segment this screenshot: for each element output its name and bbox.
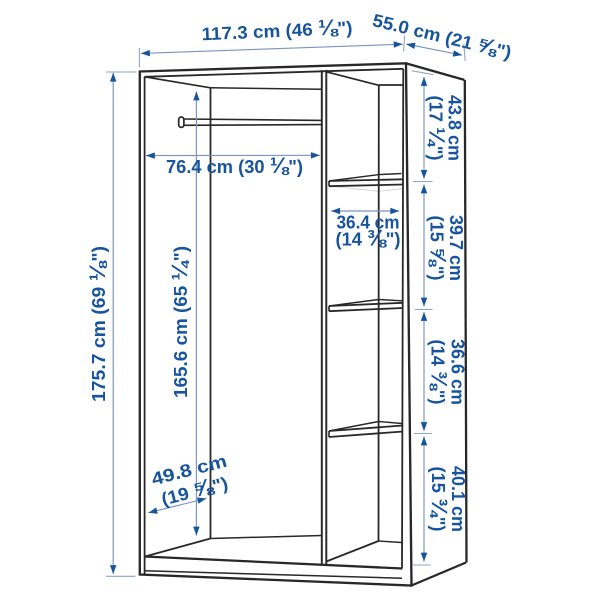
svg-text:55.0 cm (21 ⅝"): 55.0 cm (21 ⅝") [370, 6, 514, 63]
svg-text:165.6 cm (65 ¼"): 165.6 cm (65 ¼") [167, 246, 192, 398]
svg-text:(14 ⅜"): (14 ⅜") [336, 226, 401, 251]
svg-text:(15 ¾"): (15 ¾") [427, 467, 452, 532]
svg-text:76.4 cm (30 ⅛"): 76.4 cm (30 ⅛") [166, 153, 303, 178]
svg-text:175.7 cm (69 ⅛"): 175.7 cm (69 ⅛") [85, 246, 110, 402]
svg-text:(15 ⅝"): (15 ⅝") [426, 216, 451, 281]
svg-text:(14 ⅜"): (14 ⅜") [427, 340, 452, 405]
svg-text:117.3 cm (46 ⅛"): 117.3 cm (46 ⅛") [201, 14, 353, 46]
svg-text:(17 ¼"): (17 ¼") [425, 96, 450, 161]
